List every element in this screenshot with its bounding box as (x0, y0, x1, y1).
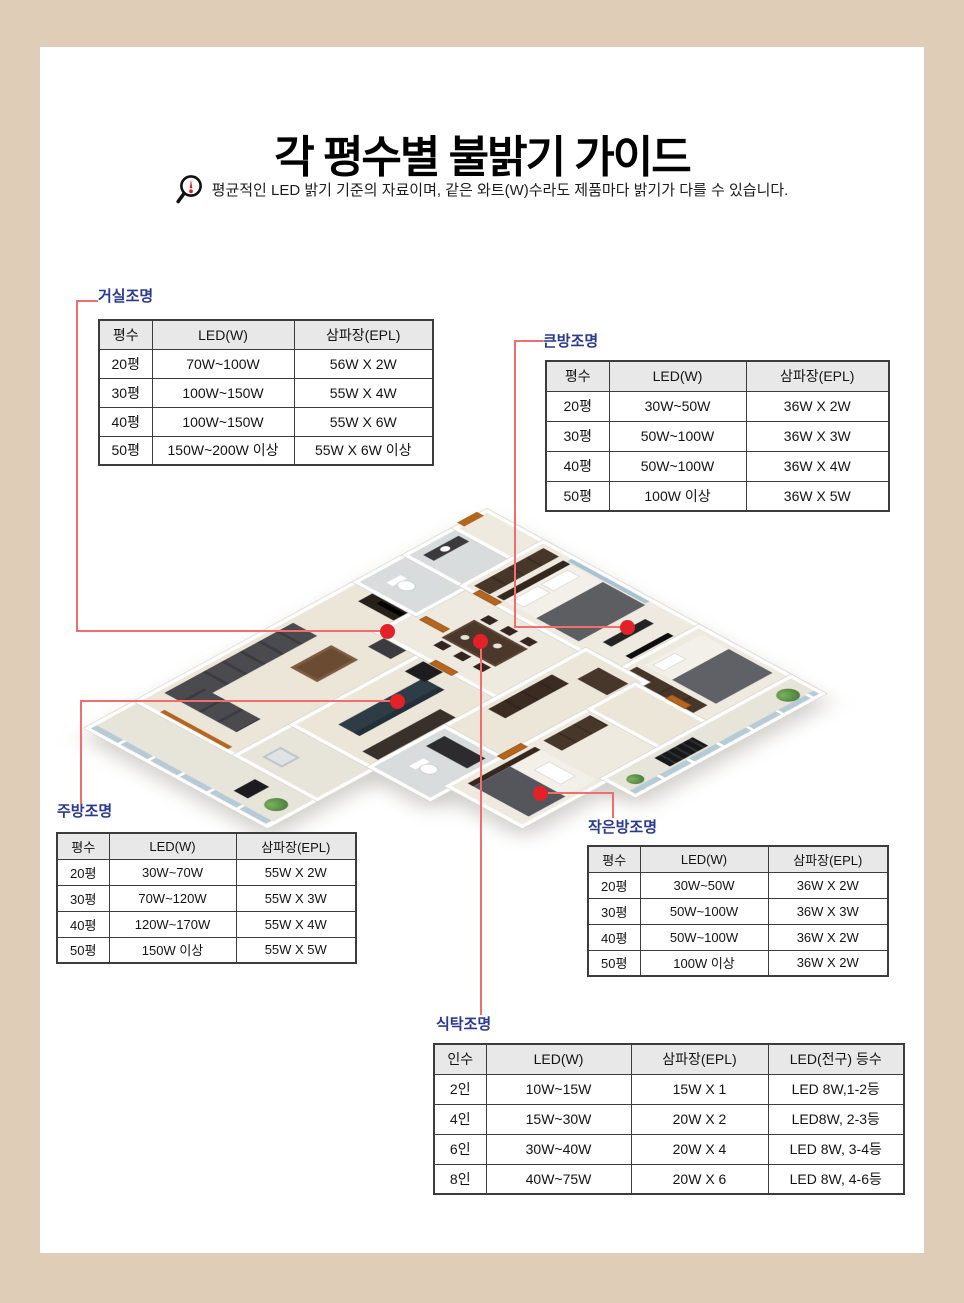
table-row: 40평 50W~100W 36W X 2W (588, 924, 888, 950)
cell: 55W X 6W 이상 (294, 436, 433, 465)
cell: 40평 (546, 451, 609, 481)
cell: 36W X 3W (768, 898, 888, 924)
cell: 40평 (588, 924, 640, 950)
col-header: LED(W) (640, 846, 768, 872)
cell: 120W~170W (109, 911, 236, 937)
col-header: 평수 (588, 846, 640, 872)
cell: 50평 (546, 481, 609, 511)
washer (262, 747, 300, 768)
cell: 30평 (588, 898, 640, 924)
table-row: 4인 15W~30W 20W X 2 LED8W, 2-3등 (434, 1104, 904, 1134)
col-header: 평수 (57, 833, 109, 859)
cell: LED 8W, 4-6등 (768, 1164, 904, 1194)
cell: 36W X 3W (746, 421, 889, 451)
cell: 15W~30W (486, 1104, 631, 1134)
cell: 4인 (434, 1104, 486, 1134)
cell: 100W~150W (152, 378, 294, 407)
cell: 55W X 5W (236, 937, 356, 963)
cell: 100W~150W (152, 407, 294, 436)
connector-line-small-room (612, 792, 614, 818)
table-row: 8인 40W~75W 20W X 6 LED 8W, 4-6등 (434, 1164, 904, 1194)
cell: 30W~40W (486, 1134, 631, 1164)
col-header: 인수 (434, 1044, 486, 1074)
table-row: 30평 100W~150W 55W X 4W (99, 378, 433, 407)
dining-table-data: 인수 LED(W) 삼파장(EPL) LED(전구) 등수 2인 10W~15W… (433, 1043, 905, 1195)
cell: 15W X 1 (631, 1074, 768, 1104)
cell: 36W X 5W (746, 481, 889, 511)
big-room-table-label: 큰방조명 (543, 334, 890, 349)
wardrobe (577, 667, 628, 695)
cell: 10W~15W (486, 1074, 631, 1104)
cell: 20W X 4 (631, 1134, 768, 1164)
kitchen-table-label: 주방조명 (57, 804, 357, 819)
table-row: 50평 100W 이상 36W X 5W (546, 481, 889, 511)
connector-line-dining (480, 641, 482, 1015)
table-row: 6인 30W~40W 20W X 4 LED 8W, 3-4등 (434, 1134, 904, 1164)
cell: 50평 (99, 436, 152, 465)
col-header: LED(W) (152, 320, 294, 349)
notice-row: 평균적인 LED 밝기 기준의 자료이며, 같은 와트(W)수라도 제품마다 밝… (40, 174, 924, 205)
living-table-section: 거실조명 평수 LED(W) 삼파장(EPL) 20평 70W~100W 56W… (98, 289, 434, 466)
cell: 30W~50W (609, 391, 746, 421)
living-table-label: 거실조명 (98, 289, 434, 304)
cell: 20W X 6 (631, 1164, 768, 1194)
cell: 30W~50W (640, 872, 768, 898)
cell: 30W~70W (109, 859, 236, 885)
table-row: 40평 100W~150W 55W X 6W (99, 407, 433, 436)
cell: LED8W, 2-3등 (768, 1104, 904, 1134)
marker-dot-big-room (620, 620, 635, 635)
cell: 150W 이상 (109, 937, 236, 963)
col-header: LED(W) (109, 833, 236, 859)
cell: 20평 (57, 859, 109, 885)
cell: LED 8W, 3-4등 (768, 1134, 904, 1164)
cell: 20평 (99, 349, 152, 378)
cell: 50평 (57, 937, 109, 963)
cell: 55W X 3W (236, 885, 356, 911)
table-row: 20평 30W~50W 36W X 2W (546, 391, 889, 421)
connector-line-living (76, 300, 98, 302)
small-room-table-label: 작은방조명 (588, 820, 889, 835)
cell: 50W~100W (609, 451, 746, 481)
big-room-table-section: 큰방조명 평수 LED(W) 삼파장(EPL) 20평 30W~50W 36W … (543, 334, 890, 512)
table-row: 30평 50W~100W 36W X 3W (546, 421, 889, 451)
cell: 2인 (434, 1074, 486, 1104)
cell: 70W~100W (152, 349, 294, 378)
col-header: 삼파장(EPL) (746, 361, 889, 391)
cell: 50평 (588, 950, 640, 976)
dining-table-section: 식탁조명 인수 LED(W) 삼파장(EPL) LED(전구) 등수 2인 10… (433, 1017, 905, 1195)
connector-line-small-room (540, 792, 614, 794)
cell: LED 8W,1-2등 (768, 1074, 904, 1104)
table-row: 30평 50W~100W 36W X 3W (588, 898, 888, 924)
connector-line-living (76, 300, 78, 631)
cell: 20평 (546, 391, 609, 421)
cell: 55W X 4W (236, 911, 356, 937)
col-header: 평수 (546, 361, 609, 391)
notice-text: 평균적인 LED 밝기 기준의 자료이며, 같은 와트(W)수라도 제품마다 밝… (212, 179, 789, 200)
marker-dot-kitchen (390, 694, 405, 709)
cell: 40평 (57, 911, 109, 937)
table-row: 30평 70W~120W 55W X 3W (57, 885, 356, 911)
cell: 30평 (99, 378, 152, 407)
table-row: 40평 50W~100W 36W X 4W (546, 451, 889, 481)
kitchen-table: 평수 LED(W) 삼파장(EPL) 20평 30W~70W 55W X 2W … (56, 832, 357, 964)
small-room-table: 평수 LED(W) 삼파장(EPL) 20평 30W~50W 36W X 2W … (587, 845, 889, 977)
table-row: 20평 30W~70W 55W X 2W (57, 859, 356, 885)
table-row: 20평 30W~50W 36W X 2W (588, 872, 888, 898)
living-table: 평수 LED(W) 삼파장(EPL) 20평 70W~100W 56W X 2W… (98, 319, 434, 466)
col-header: LED(W) (609, 361, 746, 391)
cell: 50W~100W (609, 421, 746, 451)
table-row: 50평 150W~200W 이상 55W X 6W 이상 (99, 436, 433, 465)
cell: 36W X 2W (768, 950, 888, 976)
infographic-page: 각 평수별 불밝기 가이드 평균적인 LED 밝기 기준의 자료이며, 같은 와… (0, 0, 964, 1303)
cell: 40평 (99, 407, 152, 436)
cell: 36W X 4W (746, 451, 889, 481)
cell: 150W~200W 이상 (152, 436, 294, 465)
kitchen-table-section: 주방조명 평수 LED(W) 삼파장(EPL) 20평 30W~70W 55W … (56, 804, 357, 964)
col-header: LED(전구) 등수 (768, 1044, 904, 1074)
marker-dot-small-room (533, 786, 548, 801)
cell: 36W X 2W (746, 391, 889, 421)
balcony-chair (234, 779, 269, 798)
col-header: 삼파장(EPL) (236, 833, 356, 859)
table-row: 40평 120W~170W 55W X 4W (57, 911, 356, 937)
connector-line-kitchen (80, 700, 399, 702)
magnifier-alert-icon (176, 174, 203, 205)
connector-line-big-room (514, 340, 543, 342)
cell: 56W X 2W (294, 349, 433, 378)
connector-line-big-room (514, 626, 629, 628)
cell: 20W X 2 (631, 1104, 768, 1134)
cell: 30평 (546, 421, 609, 451)
small-room-table-section: 작은방조명 평수 LED(W) 삼파장(EPL) 20평 30W~50W 36W… (588, 820, 889, 977)
cell: 36W X 2W (768, 872, 888, 898)
cell: 100W 이상 (640, 950, 768, 976)
connector-line-living (76, 630, 389, 632)
cell: 50W~100W (640, 924, 768, 950)
col-header: 삼파장(EPL) (294, 320, 433, 349)
cell: 8인 (434, 1164, 486, 1194)
coffee-table (290, 645, 358, 682)
table-row: 20평 70W~100W 56W X 2W (99, 349, 433, 378)
connector-line-kitchen (80, 700, 82, 804)
cell: 20평 (588, 872, 640, 898)
dining-table-label: 식탁조명 (436, 1017, 905, 1032)
cell: 55W X 6W (294, 407, 433, 436)
marker-dot-living (380, 624, 395, 639)
col-header: 삼파장(EPL) (631, 1044, 768, 1074)
cell: 36W X 2W (768, 924, 888, 950)
col-header: 평수 (99, 320, 152, 349)
col-header: LED(W) (486, 1044, 631, 1074)
cell: 55W X 2W (236, 859, 356, 885)
table-row: 50평 100W 이상 36W X 2W (588, 950, 888, 976)
cell: 50W~100W (640, 898, 768, 924)
col-header: 삼파장(EPL) (768, 846, 888, 872)
table-row: 2인 10W~15W 15W X 1 LED 8W,1-2등 (434, 1074, 904, 1104)
big-room-table: 평수 LED(W) 삼파장(EPL) 20평 30W~50W 36W X 2W … (545, 360, 890, 512)
cell: 6인 (434, 1134, 486, 1164)
cell: 40W~75W (486, 1164, 631, 1194)
cell: 70W~120W (109, 885, 236, 911)
cell: 100W 이상 (609, 481, 746, 511)
marker-dot-dining (473, 634, 488, 649)
connector-line-big-room (514, 340, 516, 628)
cell: 30평 (57, 885, 109, 911)
table-row: 50평 150W 이상 55W X 5W (57, 937, 356, 963)
cell: 55W X 4W (294, 378, 433, 407)
